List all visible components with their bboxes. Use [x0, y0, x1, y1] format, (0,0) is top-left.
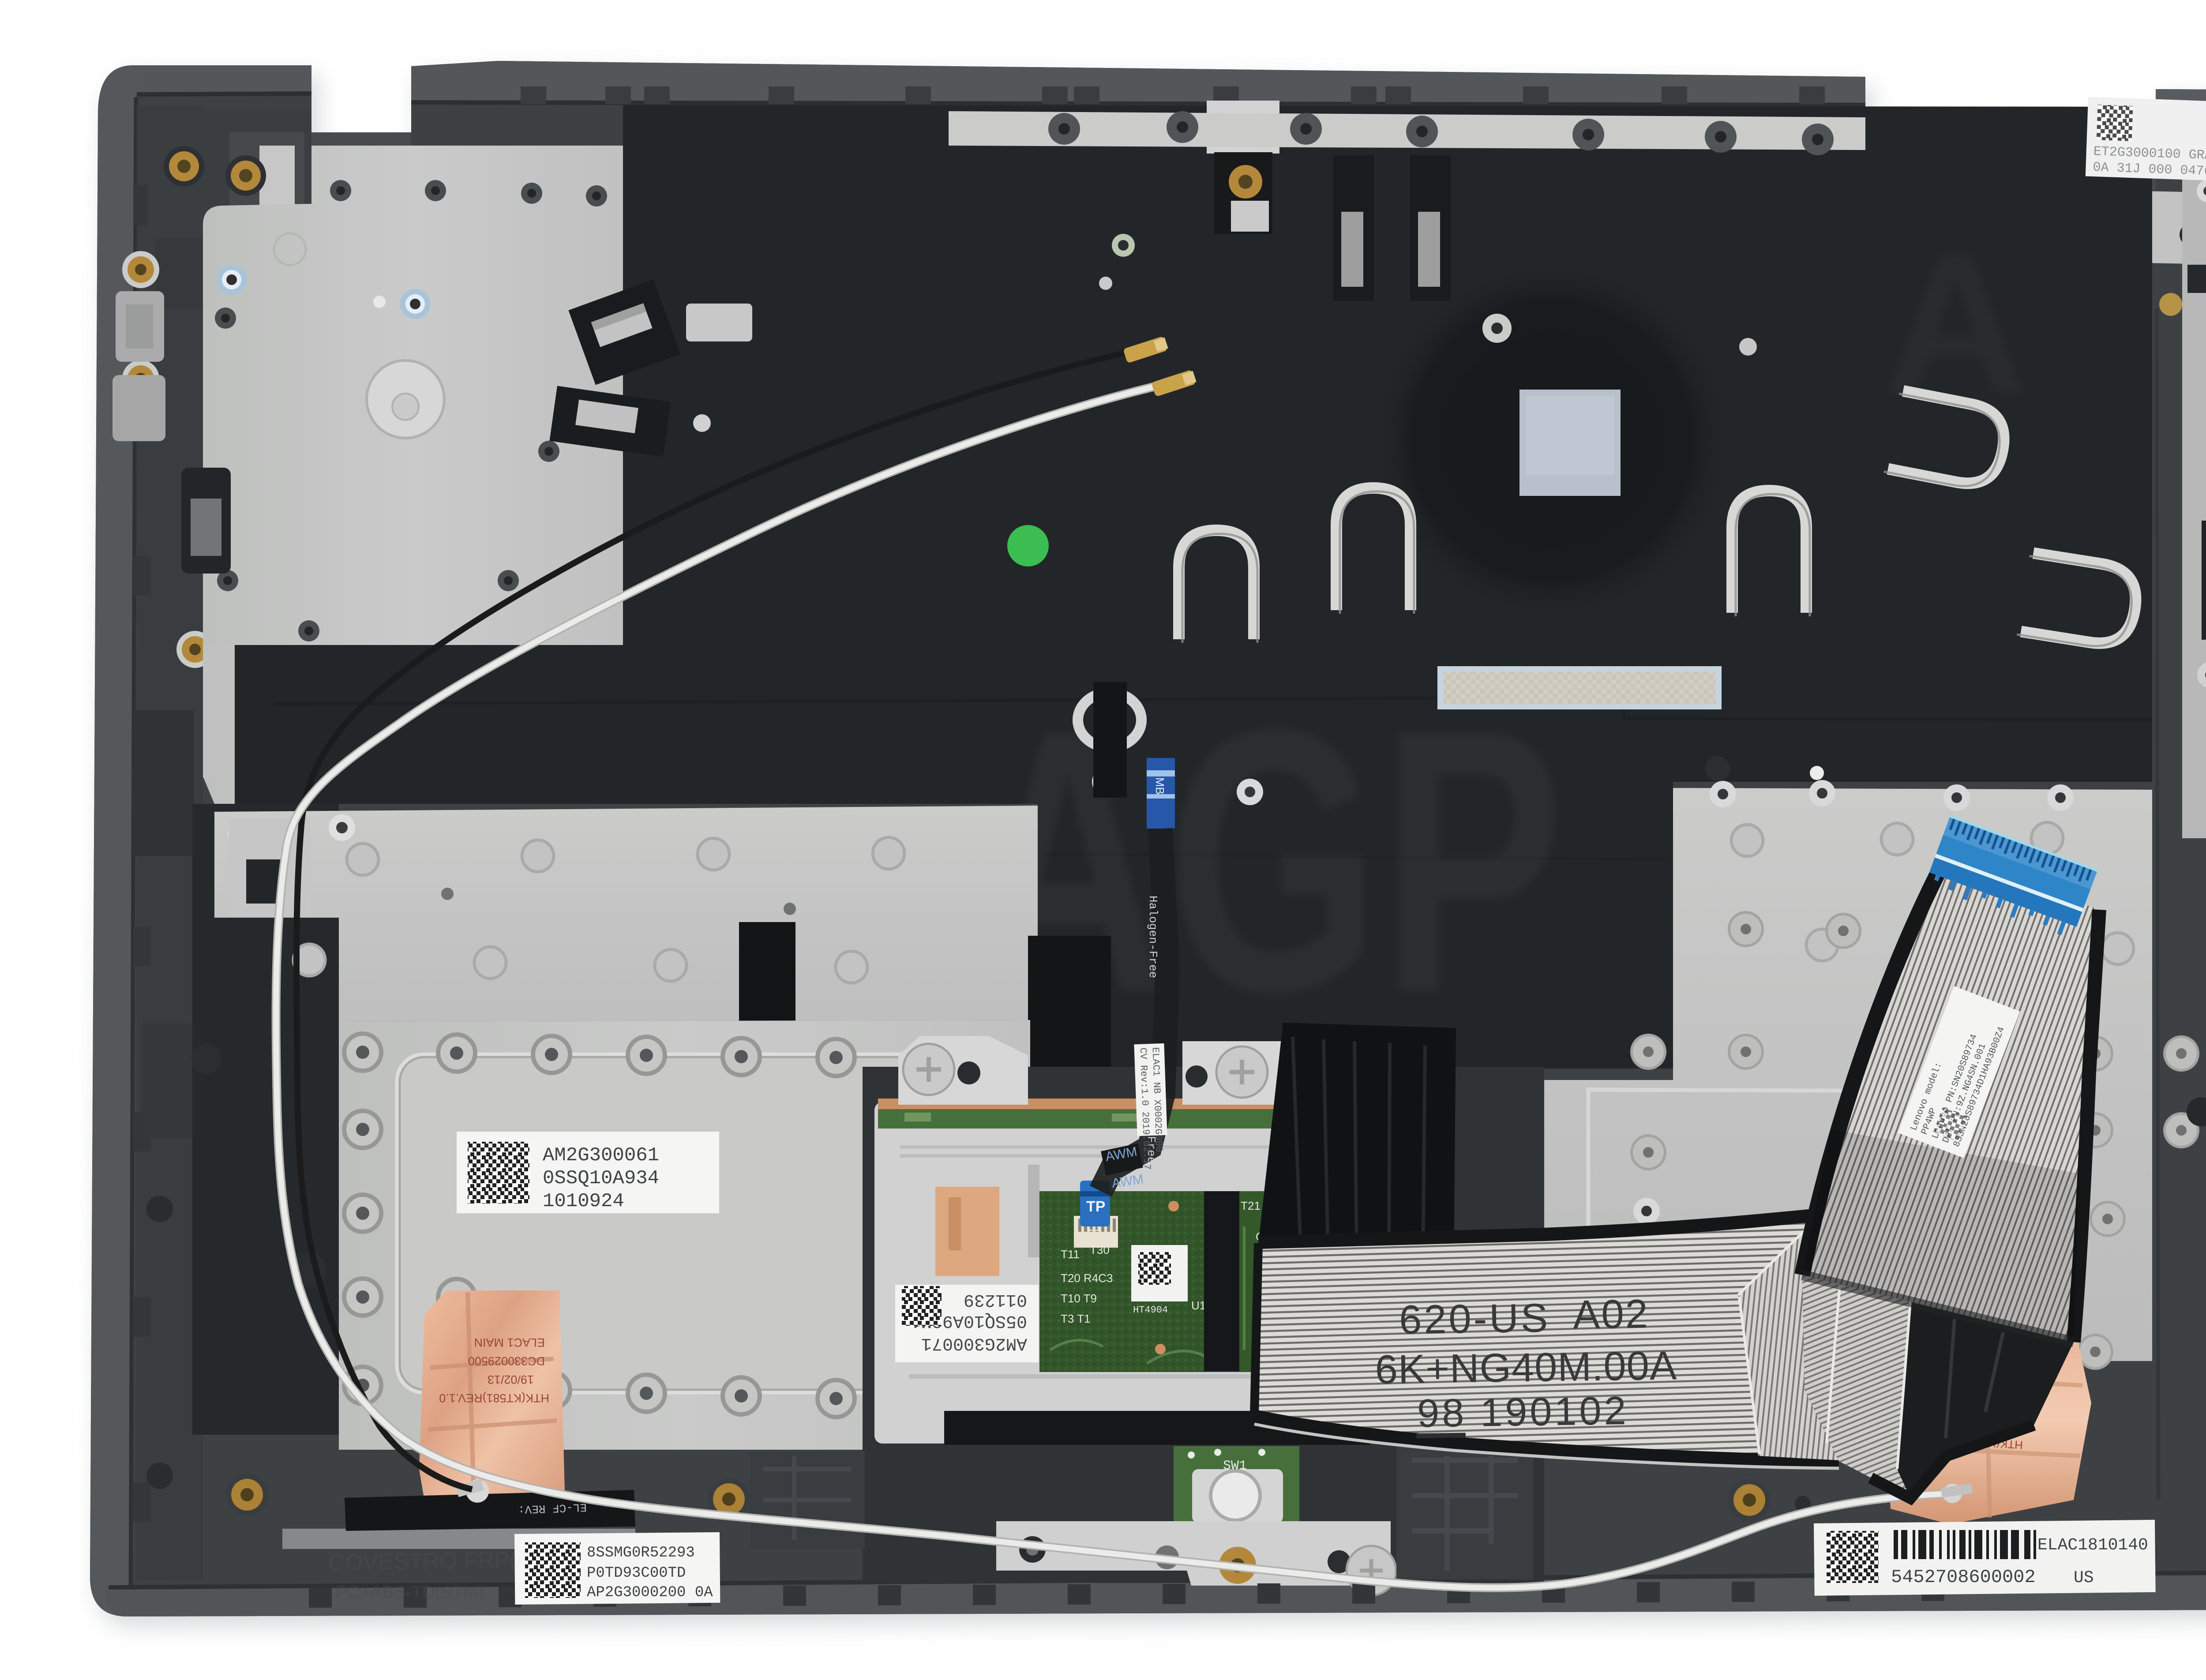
- svg-text:HTK(KT581)REV.1.0: HTK(KT581)REV.1.0: [439, 1391, 549, 1405]
- svg-text:8SSMG0R52293: 8SSMG0R52293: [587, 1545, 695, 1561]
- svg-text:ELAC1810140: ELAC1810140: [2037, 1536, 2148, 1555]
- svg-text:ELAC1 MAIN: ELAC1 MAIN: [474, 1336, 545, 1349]
- svg-text:T21: T21: [1241, 1199, 1261, 1212]
- svg-text:T10 T9: T10 T9: [1061, 1292, 1097, 1305]
- svg-text:T30: T30: [1090, 1243, 1110, 1256]
- svg-text:011239: 011239: [964, 1290, 1027, 1309]
- svg-text:Halogen-Free: Halogen-Free: [1146, 896, 1159, 978]
- svg-text:A02: A02: [1572, 1291, 1649, 1337]
- svg-text:98 190102: 98 190102: [1417, 1389, 1629, 1436]
- svg-text:T20 R4C3: T20 R4C3: [1061, 1271, 1113, 1285]
- svg-text:5452708600002: 5452708600002: [1891, 1567, 2036, 1588]
- svg-text:PC+ABS-TD(STM): PC+ABS-TD(STM): [335, 1582, 484, 1602]
- svg-text:EL-CF REV:: EL-CF REV:: [518, 1500, 587, 1516]
- svg-text:T3 T1: T3 T1: [1061, 1312, 1090, 1325]
- svg-text:0SSQ10A934: 0SSQ10A934: [543, 1167, 659, 1189]
- svg-text:AP2G3000200 0A: AP2G3000200 0A: [587, 1584, 713, 1601]
- svg-text:DC330029500: DC330029500: [468, 1354, 545, 1368]
- svg-text:MB: MB: [1153, 777, 1167, 795]
- svg-text:P0TD93C00TD: P0TD93C00TD: [587, 1565, 686, 1582]
- svg-text:COVESTRO FRP(T): COVESTRO FRP(T): [328, 1547, 539, 1576]
- svg-text:AM2G300061: AM2G300061: [543, 1144, 659, 1166]
- svg-text:T11: T11: [1061, 1248, 1080, 1261]
- svg-text:HT4904: HT4904: [1133, 1305, 1168, 1316]
- svg-text:AM2G300071: AM2G300071: [921, 1333, 1027, 1353]
- svg-text:TP: TP: [1086, 1198, 1105, 1215]
- svg-text:U1: U1: [1191, 1299, 1206, 1312]
- svg-text:19/02/13: 19/02/13: [488, 1373, 534, 1386]
- svg-text:1010924: 1010924: [543, 1190, 624, 1212]
- svg-text:620-US: 620-US: [1399, 1295, 1550, 1342]
- svg-text:6K+NG40M.00A: 6K+NG40M.00A: [1375, 1343, 1677, 1392]
- svg-text:US: US: [2074, 1568, 2094, 1587]
